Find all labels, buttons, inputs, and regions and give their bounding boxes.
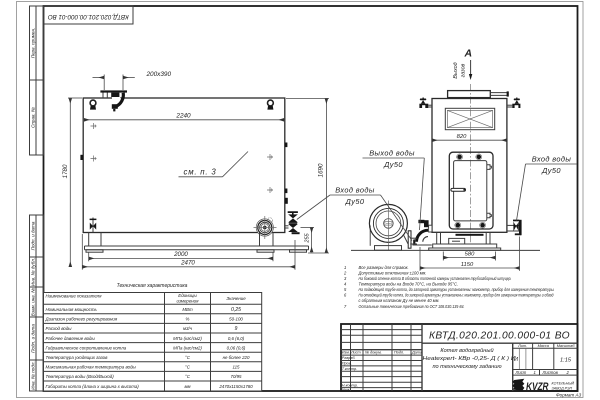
svg-text:Температура воды (Вход/Выход): Температура воды (Вход/Выход) xyxy=(46,374,115,379)
svg-text:Перв. примен.: Перв. примен. xyxy=(31,28,36,59)
svg-text:измерения: измерения xyxy=(177,298,200,303)
svg-text:КОТЕЛЬНЫЙ: КОТЕЛЬНЫЙ xyxy=(552,381,575,385)
svg-text:Пров.: Пров. xyxy=(342,362,352,366)
svg-text:Значение: Значение xyxy=(226,296,246,301)
svg-text:мм: мм xyxy=(184,384,190,389)
svg-text:по техническому заданию: по техническому заданию xyxy=(432,364,502,370)
svg-text:Лист: Лист xyxy=(515,370,527,375)
svg-text:с обратным клапаном Ду не мен: с обратным клапаном Ду не менее 40 мм. xyxy=(359,298,440,303)
svg-text:820: 820 xyxy=(457,134,467,140)
svg-text:200х390: 200х390 xyxy=(146,71,172,78)
svg-text:Техническая характеристика: Техническая характеристика xyxy=(117,283,188,289)
svg-text:580: 580 xyxy=(465,251,475,257)
svg-text:1: 1 xyxy=(534,370,536,375)
svg-text:1780: 1780 xyxy=(62,164,69,178)
svg-text:%: % xyxy=(186,317,190,322)
svg-text:№ докум.: № докум. xyxy=(365,351,382,355)
svg-text:Температура уходящих газов: Температура уходящих газов xyxy=(46,355,109,360)
svg-text:см. п. 3: см. п. 3 xyxy=(184,167,217,176)
svg-text:МПа (кгс/см2): МПа (кгс/см2) xyxy=(173,336,202,341)
svg-text:м3/ч: м3/ч xyxy=(183,326,193,331)
svg-text:115: 115 xyxy=(233,365,241,370)
svg-text:Выход воды: Выход воды xyxy=(369,149,415,158)
svg-text:255: 255 xyxy=(305,232,311,243)
svg-text:Инв. № подл.: Инв. № подл. xyxy=(31,361,36,390)
svg-text:МПа (кгс/см2): МПа (кгс/см2) xyxy=(173,345,202,350)
svg-text:KVZR: KVZR xyxy=(526,381,549,393)
svg-text:50-100: 50-100 xyxy=(229,317,243,322)
svg-text:газов: газов xyxy=(461,63,467,77)
svg-text:70/95: 70/95 xyxy=(231,374,243,379)
svg-text:Лит.: Лит. xyxy=(517,344,527,348)
svg-text:Изм. Лист: Изм. Лист xyxy=(342,351,361,355)
svg-text:КВТД.020.201.00.000-01 ВО: КВТД.020.201.00.000-01 ВО xyxy=(48,13,129,20)
svg-text:Дата: Дата xyxy=(411,351,422,355)
svg-text:2470: 2470 xyxy=(180,260,195,267)
svg-text:Листов: Листов xyxy=(542,370,559,375)
svg-text:Разраб.: Разраб. xyxy=(342,356,356,360)
svg-text:Наименование показателя: Наименование показателя xyxy=(46,294,103,299)
svg-text:9: 9 xyxy=(235,326,238,332)
svg-text:Выход: Выход xyxy=(453,62,459,78)
svg-text:°С: °С xyxy=(185,365,191,370)
svg-text:Габариты котла (длина х ширина: Габариты котла (длина х ширина х высота) xyxy=(46,384,140,389)
svg-text:Максимальная рабочая температу: Максимальная рабочая температура воды xyxy=(46,365,137,370)
svg-text:2470х1150х1780: 2470х1150х1780 xyxy=(218,384,253,389)
svg-text:Вход воды: Вход воды xyxy=(532,155,572,164)
svg-text:Единицы: Единицы xyxy=(178,293,197,298)
svg-text:Все размеры для справок.: Все размеры для справок. xyxy=(359,265,409,270)
svg-text:Котел водогрейный: Котел водогрейный xyxy=(440,347,493,354)
svg-text:Подп.: Подп. xyxy=(394,351,404,355)
svg-text:0,06 (0,6): 0,06 (0,6) xyxy=(227,345,246,350)
svg-text:Инв. № дубл.: Инв. № дубл. xyxy=(31,258,36,286)
svg-text:ЗАВОД РЭП: ЗАВОД РЭП xyxy=(552,387,573,391)
svg-text:Н.контр.: Н.контр. xyxy=(342,383,358,387)
svg-text:Ду50: Ду50 xyxy=(383,160,403,169)
svg-text:Рабочее давление воды: Рабочее давление воды xyxy=(46,336,96,341)
svg-text:1690: 1690 xyxy=(317,163,324,177)
svg-text:Температура воды на Входе 70°С: Температура воды на Входе 70°С, на Выход… xyxy=(359,282,459,287)
svg-text:Номинальная мощность: Номинальная мощность xyxy=(46,307,98,312)
svg-text:°С: °С xyxy=(185,374,191,379)
svg-text:не более 220: не более 220 xyxy=(223,355,250,360)
svg-text:Утв.: Утв. xyxy=(342,388,351,392)
svg-text:Масштаб: Масштаб xyxy=(557,344,576,348)
svg-text:На отводящей трубе котла, до з: На отводящей трубе котла, до запорной ар… xyxy=(359,293,555,298)
svg-text:0,6 (6,0): 0,6 (6,0) xyxy=(228,336,245,341)
svg-text:Вход воды: Вход воды xyxy=(335,185,375,194)
svg-text:Допустимые отклонения ±100 мм: Допустимые отклонения ±100 мм. xyxy=(358,271,427,276)
svg-text:И: И xyxy=(514,357,518,363)
svg-text:Подп. и дата: Подп. и дата xyxy=(31,324,36,353)
svg-text:Расход воды: Расход воды xyxy=(46,326,73,331)
svg-text:Ду50: Ду50 xyxy=(345,197,365,206)
svg-text:На боковой стенке котла В обла: На боковой стенке котла В области топочн… xyxy=(359,276,512,281)
svg-text:Диапазон рабочего регулировани: Диапазон рабочего регулирования xyxy=(45,317,118,322)
svg-text:1150: 1150 xyxy=(461,262,474,268)
svg-text:МВт: МВт xyxy=(182,307,193,312)
svg-text:На подводящей трубе котла, до: На подводящей трубе котла, до запорной а… xyxy=(359,287,555,292)
svg-text:Гидравлическое сопротивление к: Гидравлическое сопротивление котла xyxy=(46,345,127,350)
svg-text:Т.контр.: Т.контр. xyxy=(342,367,357,371)
svg-text:1:15: 1:15 xyxy=(560,358,572,364)
svg-text:КВТД.020.201.00.000-01 ВО: КВТД.020.201.00.000-01 ВО xyxy=(429,331,570,342)
svg-text:Масса: Масса xyxy=(538,344,549,348)
svg-text:Подп. и дата: Подп. и дата xyxy=(31,221,36,250)
svg-text:0,25: 0,25 xyxy=(231,307,241,313)
svg-text:А: А xyxy=(464,48,473,60)
svg-text:1: 1 xyxy=(344,265,346,270)
svg-text:Ду50: Ду50 xyxy=(541,166,561,175)
svg-text:Справ. №: Справ. № xyxy=(31,107,36,128)
svg-text:2240: 2240 xyxy=(175,113,191,120)
svg-text:Heatexpert- КВр -0,25- Д ( К ): Heatexpert- КВр -0,25- Д ( К ) И xyxy=(423,356,516,362)
svg-text:Формат А3: Формат А3 xyxy=(556,392,582,397)
svg-text:Остальные технические требован: Остальные технические требования по ОСТ … xyxy=(359,304,465,309)
svg-text:2000: 2000 xyxy=(173,251,188,258)
svg-text:°С: °С xyxy=(185,355,191,360)
svg-text:Взам. инв. №: Взам. инв. № xyxy=(31,288,36,316)
